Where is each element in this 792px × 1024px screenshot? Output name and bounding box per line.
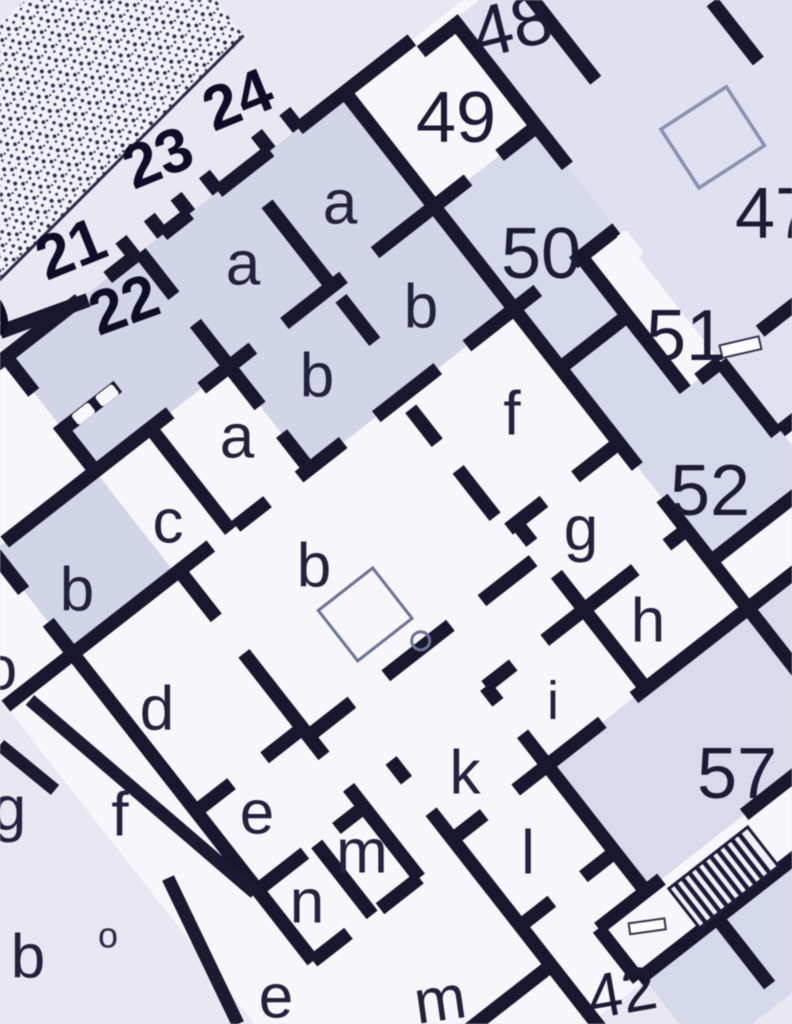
room-label-a-2: a [226, 230, 261, 299]
room-label-i: i [547, 671, 559, 731]
room-label-g-1: g [564, 495, 598, 564]
entrance-number-52: 52 [670, 451, 750, 531]
room-label-c: c [153, 488, 184, 557]
room-label-b-2: b [300, 342, 334, 411]
site-plan-svg: 24 23 21 22 0 48 49 50 51 52 57 42 47 a … [0, 0, 792, 1024]
entrance-number-49: 49 [416, 78, 496, 158]
room-label-k: k [450, 739, 482, 808]
room-label-b-atrium: b [297, 532, 331, 601]
room-label-d: d [140, 675, 174, 744]
room-label-f-1: f [503, 380, 521, 449]
room-label-m-1: m [336, 818, 388, 887]
entrance-number-50: 50 [501, 214, 581, 294]
room-label-o-edge: o [0, 635, 17, 704]
room-label-n: n [290, 868, 324, 937]
room-label-o-small: o [98, 915, 118, 956]
room-label-m-2: m [410, 962, 471, 1024]
room-label-b-1: b [404, 273, 438, 342]
pompeii-insula-plan: 24 23 21 22 0 48 49 50 51 52 57 42 47 a … [0, 0, 792, 1024]
room-label-h: h [631, 587, 665, 656]
room-label-g-2: g [0, 775, 26, 844]
entrance-number-47: 47 [735, 174, 792, 254]
room-label-a-3: a [220, 403, 255, 472]
entrance-number-51: 51 [646, 296, 726, 376]
room-label-e-2: e [259, 963, 293, 1024]
room-label-f-2: f [111, 781, 129, 850]
room-label-b-west: b [60, 556, 94, 625]
room-label-l: l [521, 819, 535, 888]
room-label-b-south: b [11, 923, 45, 992]
room-label-a-1: a [323, 169, 358, 238]
entrance-number-57: 57 [697, 734, 777, 814]
entrance-number-42: 42 [582, 953, 662, 1024]
room-label-e-1: e [240, 779, 274, 848]
